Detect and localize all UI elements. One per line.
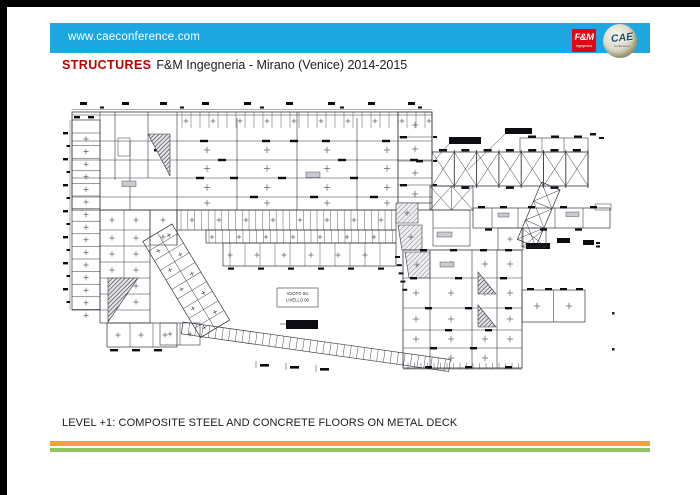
header-bar: www.caeconference.com [50, 23, 650, 53]
annotation-marks [612, 312, 615, 351]
frame-border-left [0, 0, 7, 495]
void-label-line1: VUOTO SU [287, 291, 309, 296]
void-label: VUOTO SU LIVELLO 00 [277, 288, 318, 329]
joist-corridor-bands [177, 210, 396, 270]
stripe-green [50, 448, 650, 453]
slide: www.caeconference.com F&M ingegneria CAE… [0, 0, 700, 495]
fm-ingegneria-logo: F&M ingegneria [572, 29, 596, 52]
caption: LEVEL +1: COMPOSITE STEEL AND CONCRETE F… [62, 417, 457, 429]
fm-logo-text: F&M [572, 31, 596, 44]
frame-border-top [0, 0, 700, 7]
floor-plan-drawing: VUOTO SU LIVELLO 00 [58, 96, 652, 414]
dimension-marks [72, 102, 432, 110]
x-braced-bridge [430, 128, 604, 249]
cae-logo-subtext: Conference [614, 44, 630, 48]
right-block [403, 249, 585, 369]
right-connector-core [396, 112, 437, 278]
cae-conference-logo: CAE Conference [603, 24, 637, 58]
title-text: F&M Ingegneria - Mirano (Venice) 2014-20… [156, 58, 407, 72]
conference-url[interactable]: www.caeconference.com [68, 31, 200, 43]
slide-title: STRUCTURESF&M Ingegneria - Mirano (Venic… [62, 58, 407, 72]
fm-logo-subtext: ingegneria [572, 44, 596, 48]
void-annotation-bar [286, 320, 318, 329]
cae-logo-text: CAE [610, 31, 633, 45]
title-keyword: STRUCTURES [62, 58, 151, 72]
stripe-orange [50, 441, 650, 446]
void-label-line2: LIVELLO 00 [286, 298, 309, 303]
